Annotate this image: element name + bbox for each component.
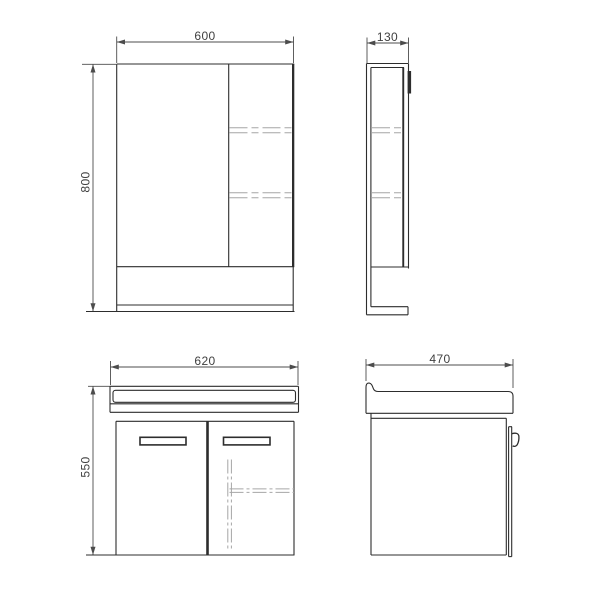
- arrow-left-icon: [366, 363, 374, 368]
- arrow-down-icon: [91, 547, 96, 555]
- door-handle-left: [140, 437, 186, 445]
- washbasin-front: [110, 386, 299, 412]
- dim-label-mirror-width: 600: [194, 29, 215, 43]
- door-handle-tab: [408, 71, 412, 94]
- dimension-vanity-width: 620: [111, 354, 299, 385]
- arrow-up-icon: [91, 386, 96, 394]
- dim-label-mirror-depth: 130: [377, 30, 398, 44]
- arrow-right-icon: [505, 363, 513, 368]
- arrow-left-icon: [117, 40, 125, 45]
- arrow-left-icon: [111, 365, 119, 370]
- arrow-right-icon: [400, 41, 408, 46]
- front-door-panel: [402, 68, 404, 268]
- view-vanity-side: 470: [366, 352, 519, 557]
- arrow-down-icon: [91, 303, 96, 311]
- dim-label-mirror-height: 800: [79, 171, 93, 192]
- view-vanity-front: 620 550: [79, 354, 299, 555]
- dim-label-vanity-width: 620: [194, 354, 215, 368]
- dim-label-vanity-depth: 470: [429, 352, 450, 366]
- mirror-side-outline: [367, 64, 412, 315]
- mirror-door-edge: [292, 64, 294, 267]
- vanity-cabinet-side: [371, 413, 519, 556]
- dimension-vanity-height: 550: [79, 386, 111, 555]
- vanity-cabinet-front: [86, 421, 295, 555]
- mirror-cabinet-outline: [86, 64, 295, 312]
- view-mirror-cabinet-front: 600 800: [79, 29, 295, 312]
- vanity-hidden-lines: [228, 460, 294, 552]
- arrow-up-icon: [91, 64, 96, 72]
- mirror-side-shelf-lines: [372, 128, 402, 198]
- arrow-right-icon: [285, 40, 293, 45]
- basin-profile: [366, 383, 513, 413]
- dimension-mirror-height: 800: [79, 64, 117, 311]
- dimension-vanity-depth: 470: [366, 352, 513, 388]
- door-handle-right: [224, 437, 271, 445]
- dimension-mirror-width: 600: [117, 29, 294, 63]
- dim-label-vanity-height: 550: [79, 456, 93, 477]
- view-mirror-cabinet-side: 130: [367, 30, 412, 315]
- arrow-right-icon: [290, 365, 298, 370]
- door-divider: [206, 421, 209, 555]
- washbasin-side: [366, 383, 513, 413]
- arrow-left-icon: [367, 41, 375, 46]
- basin-rim-inner: [113, 390, 296, 402]
- door-handle-hook: [512, 433, 519, 446]
- dimension-mirror-depth: 130: [367, 30, 409, 63]
- technical-drawing-canvas: 600 800: [0, 0, 600, 600]
- mirror-shelf-lines: [230, 128, 293, 198]
